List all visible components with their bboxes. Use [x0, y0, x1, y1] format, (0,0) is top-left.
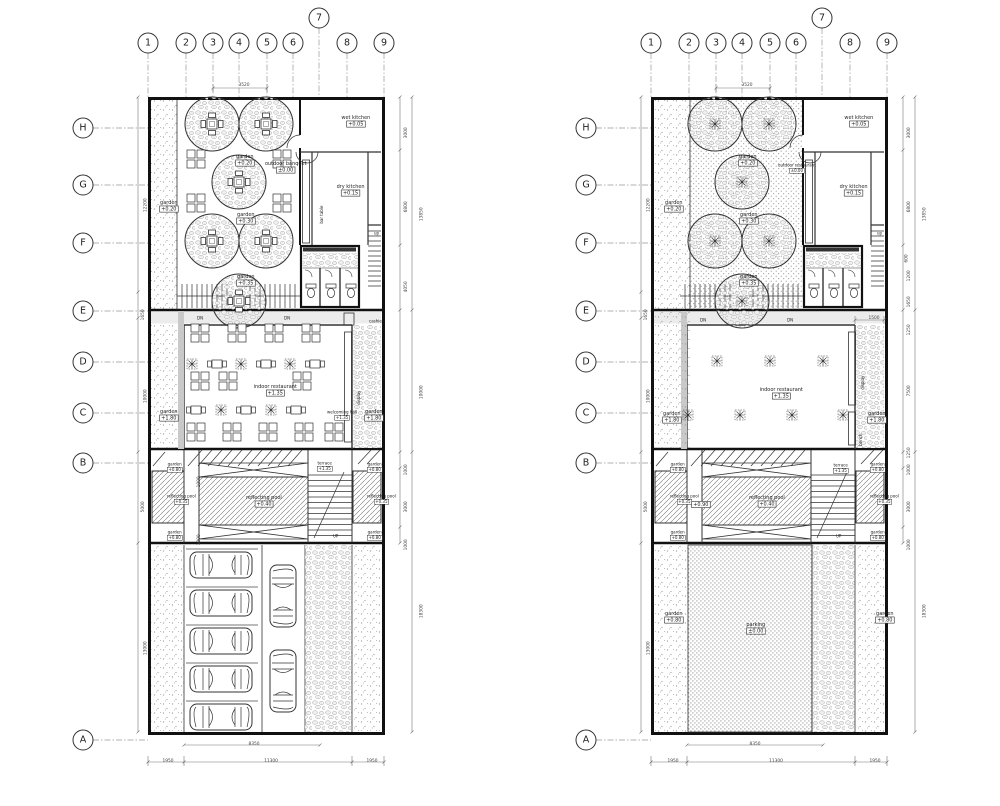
dim-channel: 1000 [197, 534, 202, 545]
dim-bottom: 11300 [264, 758, 278, 763]
level-badge: +0.90 [691, 501, 710, 508]
level-badge: +0.80 [870, 467, 885, 473]
label-text: 1650 [644, 309, 649, 320]
label-text: garden [237, 273, 254, 279]
label-text: reflecting pool [670, 494, 699, 499]
grid-bubble-C: C [73, 403, 94, 424]
label-up-terrace-stair: UP [333, 534, 338, 539]
label-outdoor-banquet: outdoor banquet±0.00 [265, 160, 307, 173]
level-badge: +0.40 [254, 501, 273, 508]
label-text: garden [168, 530, 182, 535]
label-text: bench [859, 434, 864, 446]
label-text: 13000 [143, 641, 148, 655]
dim-right: 1000 [907, 464, 912, 475]
label-text: 10000 [646, 389, 651, 403]
label-garden-midzone-right: garden+1.80 [867, 410, 886, 423]
dim-right: 1000 [404, 464, 409, 475]
label-text: reflecting pool [367, 494, 396, 499]
grid-bubble-8: 8 [840, 33, 861, 54]
dim-right: 1650 [907, 296, 912, 307]
level-badge: +0.80 [870, 535, 885, 541]
label-text: 12200 [143, 198, 148, 212]
label-text: garden [871, 530, 885, 535]
level-badge: +0.05 [849, 121, 868, 128]
label-garden-midzone-left: garden+1.80 [159, 408, 178, 421]
grid-bubble-D: D [73, 352, 94, 373]
dim-top: 3520 [741, 82, 752, 87]
grid-bubble-2: 2 [176, 33, 197, 54]
dim-bottom: 1950 [869, 758, 880, 763]
annotation-layer: 123456789HGFEDCBA123456789HGFEDCBAgarden… [0, 0, 1000, 806]
level-badge: +0.35 [236, 280, 255, 287]
label-dn-left: DN [197, 316, 203, 321]
label-text: 5000 [644, 501, 649, 512]
dim-right: 1000 [907, 539, 912, 550]
level-badge: +1.35 [833, 468, 848, 474]
label-garden-pool: garden+0.80 [167, 530, 182, 541]
grid-bubble-A: A [73, 730, 94, 751]
grid-bubble-F: F [576, 233, 597, 254]
grid-bubble-9: 9 [877, 33, 898, 54]
dim-left: 12200 [646, 198, 651, 212]
label-text: 3520 [741, 82, 752, 87]
dim-right: 3000 [404, 501, 409, 512]
label-text: 600 [904, 254, 909, 262]
label-text: 18300 [922, 604, 927, 618]
label-text: 13850 [922, 207, 927, 221]
label-text: up [877, 231, 882, 236]
label-text: UP [836, 534, 841, 539]
label-outdoor-restaurant: outdoor restaurant±0.00 [778, 163, 816, 174]
dim-left: 1650 [644, 309, 649, 320]
dim-right-total: 13850 [922, 207, 927, 221]
dim-right: 1200 [907, 270, 912, 281]
label-bench: bench [859, 434, 864, 446]
label-text: reflecting pool [246, 494, 282, 500]
label-text: 11300 [264, 758, 278, 763]
label-text: welcoming hall [327, 410, 357, 415]
grid-bubble-5: 5 [257, 33, 278, 54]
grid-bubble-1: 1 [138, 33, 159, 54]
label-text: garden [739, 153, 756, 159]
label-text: reflecting pool [870, 494, 899, 499]
level-badge: +0.80 [664, 617, 683, 624]
level-badge: +0.40 [757, 501, 776, 508]
label-text: up [374, 231, 379, 236]
level-badge: +0.15 [844, 190, 863, 197]
label-text: 8350 [248, 741, 259, 746]
grid-bubble-B: B [576, 453, 597, 474]
dim-right: 6800 [404, 201, 409, 212]
label-text: 1250 [907, 324, 912, 335]
level-badge: +0.80 [670, 535, 685, 541]
label-text: 6800 [907, 201, 912, 212]
label-text: 7500 [907, 385, 912, 396]
dim-left: 1650 [141, 309, 146, 320]
label-text: garden [663, 410, 680, 416]
label-text: 8350 [749, 741, 760, 746]
grid-bubble-7: 7 [309, 8, 330, 29]
label-garden-parking-right: garden+0.80 [875, 610, 894, 623]
label-text: 1000 [404, 539, 409, 550]
label-text: garden [237, 211, 254, 217]
label-text: 4050 [404, 281, 409, 292]
level-badge: +0.35 [739, 280, 758, 287]
level-badge: ±0.00 [789, 168, 804, 174]
dim-left: 10000 [143, 389, 148, 403]
label-garden-strip-left: garden+0.20 [159, 199, 178, 212]
label-indoor-restaurant: indoor restaurant+1.35 [254, 383, 297, 396]
label-reflecting-pool-main: reflecting pool+0.40 [246, 494, 282, 507]
label-garden-upper: garden+0.20 [235, 153, 254, 166]
label-text: cashier [369, 319, 383, 324]
label-text: 13850 [419, 207, 424, 221]
label-parking: parking±0.00 [746, 621, 765, 634]
grid-bubble-7: 7 [812, 8, 833, 29]
label-text: DN [700, 318, 706, 323]
label-text: outdoor banquet [265, 160, 307, 166]
level-badge: +0.80 [875, 617, 894, 624]
label-up-kitchen-stair: up [877, 231, 882, 236]
dim-right-total: 10000 [419, 385, 424, 399]
label-garden-lower: garden+0.35 [739, 273, 758, 286]
dim-right: 3000 [907, 127, 912, 138]
label-garden-midzone-left: garden+1.80 [662, 410, 681, 423]
level-badge: +0.30 [236, 218, 255, 225]
label-text: terrace [317, 461, 331, 466]
level-badge: +0.80 [167, 467, 182, 473]
label-text: indoor restaurant [760, 386, 803, 392]
label-text: 3000 [907, 501, 912, 512]
label-text: display [357, 391, 362, 405]
level-badge: +0.80 [670, 467, 685, 473]
dim-right: 6800 [907, 201, 912, 212]
dim-right: 4050 [404, 281, 409, 292]
level-badge: +0.80 [367, 535, 382, 541]
label-text: 3000 [907, 127, 912, 138]
floor-plan-sheet: 123456789HGFEDCBA123456789HGFEDCBAgarden… [0, 0, 1000, 806]
dim-bottom: 1950 [366, 758, 377, 763]
grid-bubble-3: 3 [203, 33, 224, 54]
label-text: 1000 [907, 464, 912, 475]
level-badge: +0.80 [167, 535, 182, 541]
grid-bubble-G: G [73, 175, 94, 196]
label-display: display [861, 376, 866, 390]
label-text: 3000 [404, 501, 409, 512]
grid-bubble-4: 4 [229, 33, 250, 54]
label-text: 1000 [197, 534, 202, 545]
grid-bubble-H: H [73, 118, 94, 139]
label-garden-mid: garden+0.30 [739, 211, 758, 224]
dim-left: 10000 [646, 389, 651, 403]
dim-bottom: 1950 [667, 758, 678, 763]
label-garden-pool: garden+0.80 [367, 462, 382, 473]
label-text: 1650 [141, 309, 146, 320]
label-welcoming-hall: welcoming hall+1.35 [327, 410, 357, 421]
dim-right: 3000 [404, 127, 409, 138]
label-text: garden [671, 530, 685, 535]
grid-bubble-A: A [576, 730, 597, 751]
label-garden-pool: garden+0.80 [167, 462, 182, 473]
dim-right-total: 18300 [419, 604, 424, 618]
label-text: garden [740, 211, 757, 217]
label-text: 10000 [143, 389, 148, 403]
grid-bubble-B: B [73, 453, 94, 474]
label-text: UP [333, 534, 338, 539]
label-text: bar table [319, 206, 324, 224]
label-text: garden [368, 530, 382, 535]
label-text: 1950 [366, 758, 377, 763]
level-badge: +0.05 [346, 121, 365, 128]
level-badge: +0.20 [159, 206, 178, 213]
level-badge: +0.80 [367, 467, 382, 473]
level-badge: +1.35 [266, 390, 285, 397]
label-text: reflecting pool [749, 494, 785, 500]
label-text: terrace [833, 463, 847, 468]
label-text: display [861, 376, 866, 390]
dim-right-total: 18300 [922, 604, 927, 618]
grid-bubble-6: 6 [786, 33, 807, 54]
label-text: 10000 [419, 385, 424, 399]
level-badge: +0.30 [739, 218, 758, 225]
label-text: 1950 [667, 758, 678, 763]
label-text: DN [284, 316, 290, 321]
grid-bubble-9: 9 [374, 33, 395, 54]
label-dn-right: DN [787, 318, 793, 323]
label-garden-upper: garden+0.20 [738, 153, 757, 166]
label-reflecting-pool-main: reflecting pool+0.40 [749, 494, 785, 507]
dim-right: 1250 [907, 447, 912, 458]
grid-bubble-E: E [576, 301, 597, 322]
label-terrace: terrace+1.35 [317, 461, 332, 472]
label-text: 1200 [907, 270, 912, 281]
dim-bottom: 1950 [162, 758, 173, 763]
dim-right: 7500 [907, 385, 912, 396]
label-garden-pool: garden+0.80 [870, 462, 885, 473]
label-text: 1650 [907, 296, 912, 307]
dim-right: 600 [904, 254, 909, 262]
label-text: garden [236, 153, 253, 159]
level-badge: +1.80 [867, 417, 886, 424]
label-text: dry kitchen [840, 183, 868, 189]
label-text: 11300 [769, 758, 783, 763]
dim-right: 1250 [907, 324, 912, 335]
label-wet-kitchen: wet kitchen+0.05 [844, 114, 873, 127]
label-text: wet kitchen [844, 114, 873, 120]
dim-left: 13000 [143, 641, 148, 655]
level-badge: +0.35 [174, 499, 189, 505]
label-text: 1950 [869, 758, 880, 763]
label-cashier: cashier [369, 319, 383, 324]
grid-bubble-H: H [576, 118, 597, 139]
label-text: 6800 [404, 201, 409, 212]
grid-bubble-6: 6 [283, 33, 304, 54]
dim-bottom: 11300 [769, 758, 783, 763]
level-badge: +1.80 [662, 417, 681, 424]
label-reflecting-pool-right: reflecting pool+0.35 [367, 494, 396, 505]
level-channel: +0.90 [691, 501, 710, 509]
level-badge: +1.80 [159, 415, 178, 422]
label-text: 1500 [868, 315, 879, 320]
label-text: garden [160, 199, 177, 205]
label-text: 1000 [404, 464, 409, 475]
label-text: garden [168, 462, 182, 467]
level-badge: +1.35 [334, 415, 349, 421]
label-text: garden [868, 410, 885, 416]
label-garden-mid: garden+0.30 [236, 211, 255, 224]
dim-right: 3000 [907, 501, 912, 512]
dim-left: 13000 [646, 641, 651, 655]
label-text: outdoor restaurant [778, 163, 816, 168]
label-text: garden [876, 610, 893, 616]
label-garden-pool: garden+0.80 [870, 530, 885, 541]
label-text: 13000 [646, 641, 651, 655]
label-text: garden [365, 408, 382, 414]
label-reflecting-pool-left: reflecting pool+0.35 [167, 494, 196, 505]
dim-1500: 1500 [868, 315, 879, 320]
label-garden-parking-left: garden+0.80 [664, 610, 683, 623]
label-text: garden [671, 462, 685, 467]
label-text: garden [368, 462, 382, 467]
level-badge: +1.80 [364, 415, 383, 422]
grid-bubble-5: 5 [760, 33, 781, 54]
label-wet-kitchen: wet kitchen+0.05 [341, 114, 370, 127]
dim-bottom: 8350 [749, 741, 760, 746]
label-text: 1000 [907, 539, 912, 550]
label-garden-pool: garden+0.80 [367, 530, 382, 541]
label-display: display [357, 391, 362, 405]
grid-bubble-4: 4 [732, 33, 753, 54]
label-text: DN [787, 318, 793, 323]
label-text: garden [160, 408, 177, 414]
label-text: 12200 [646, 198, 651, 212]
grid-bubble-F: F [73, 233, 94, 254]
label-text: garden [740, 273, 757, 279]
label-bar-table: bar table [319, 206, 324, 224]
dim-top: 3520 [238, 82, 249, 87]
label-text: garden [665, 610, 682, 616]
label-text: parking [746, 621, 765, 627]
grid-bubble-C: C [576, 403, 597, 424]
label-dn-left: DN [700, 318, 706, 323]
grid-bubble-3: 3 [706, 33, 727, 54]
level-badge: +0.15 [341, 190, 360, 197]
label-dn-right: DN [284, 316, 290, 321]
level-badge: ±0.00 [276, 167, 295, 174]
label-text: dry kitchen [337, 183, 365, 189]
grid-bubble-E: E [73, 301, 94, 322]
label-text: indoor restaurant [254, 383, 297, 389]
label-text: 1250 [907, 447, 912, 458]
level-badge: +1.35 [317, 466, 332, 472]
label-text: garden [665, 199, 682, 205]
grid-bubble-8: 8 [337, 33, 358, 54]
label-dry-kitchen: dry kitchen+0.15 [337, 183, 365, 196]
label-text: 1000 [197, 476, 202, 487]
dim-bottom: 8350 [248, 741, 259, 746]
level-badge: +0.20 [738, 160, 757, 167]
label-text: reflecting pool [167, 494, 196, 499]
dim-channel: 1000 [197, 476, 202, 487]
label-up-kitchen-stair: up [374, 231, 379, 236]
label-garden-midzone-right: garden+1.80 [364, 408, 383, 421]
label-text: garden [871, 462, 885, 467]
label-text: 5000 [141, 501, 146, 512]
grid-bubble-G: G [576, 175, 597, 196]
label-dry-kitchen: dry kitchen+0.15 [840, 183, 868, 196]
label-garden-strip-left: garden+0.20 [664, 199, 683, 212]
dim-left: 5000 [141, 501, 146, 512]
level-badge: +0.20 [235, 160, 254, 167]
dim-right: 1000 [404, 539, 409, 550]
level-badge: +0.35 [677, 499, 692, 505]
label-terrace: terrace+1.35 [833, 463, 848, 474]
label-text: DN [197, 316, 203, 321]
label-text: 3520 [238, 82, 249, 87]
label-text: 3000 [404, 127, 409, 138]
label-reflecting-pool-right: reflecting pool+0.35 [870, 494, 899, 505]
level-badge: +0.35 [374, 499, 389, 505]
grid-bubble-2: 2 [679, 33, 700, 54]
label-up-terrace-stair: UP [836, 534, 841, 539]
level-badge: +1.35 [772, 393, 791, 400]
level-badge: +0.20 [664, 206, 683, 213]
grid-bubble-D: D [576, 352, 597, 373]
label-text: 1950 [162, 758, 173, 763]
level-badge: +0.35 [877, 499, 892, 505]
level-badge: ±0.00 [746, 628, 765, 635]
label-text: wet kitchen [341, 114, 370, 120]
dim-right-total: 13850 [419, 207, 424, 221]
label-indoor-restaurant: indoor restaurant+1.35 [760, 386, 803, 399]
label-garden-lower: garden+0.35 [236, 273, 255, 286]
label-text: 18300 [419, 604, 424, 618]
grid-bubble-1: 1 [641, 33, 662, 54]
dim-left: 5000 [644, 501, 649, 512]
dim-left: 12200 [143, 198, 148, 212]
label-garden-pool: garden+0.80 [670, 530, 685, 541]
label-garden-pool: garden+0.80 [670, 462, 685, 473]
